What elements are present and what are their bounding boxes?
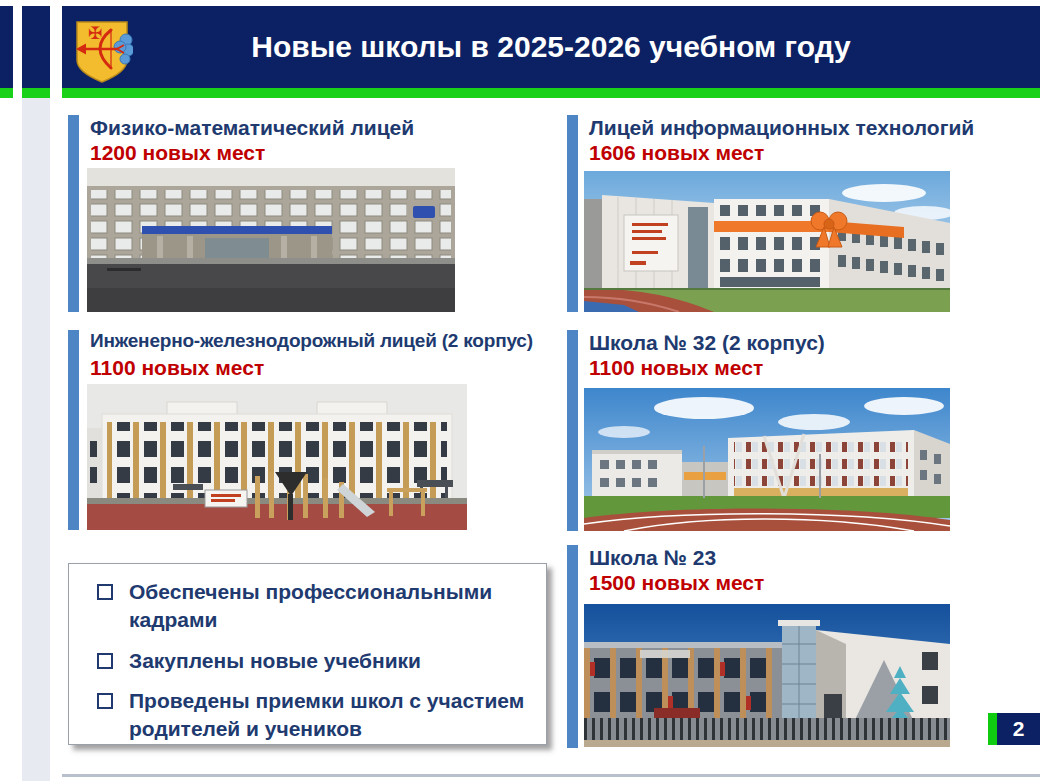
checklist-text: Проведены приемки школ с участием родите… (129, 687, 529, 744)
school-card-railway-lyceum: Инженерно-железнодорожный лицей (2 корпу… (68, 330, 472, 530)
bottom-rule (62, 774, 1040, 777)
checklist-item: Закуплены новые учебники (97, 647, 532, 675)
school-photo-32 (584, 388, 950, 531)
left-gray-column (22, 98, 50, 781)
checklist-text: Закуплены новые учебники (129, 647, 529, 675)
checkbox-bullet-icon (97, 584, 113, 600)
school-name: Физико-математический лицей (90, 116, 414, 139)
school-name: Школа № 23 (589, 546, 716, 569)
left-stripe-narrow-green (0, 88, 13, 98)
card-accent-bar (567, 115, 578, 312)
school-photo-railway-lyceum (87, 384, 467, 530)
school-places: 1100 новых мест (589, 356, 763, 379)
checkbox-bullet-icon (97, 653, 113, 669)
green-divider (62, 88, 1040, 98)
card-accent-bar (68, 330, 79, 530)
checklist-item: Обеспечены профессиональными кадрами (97, 578, 532, 635)
left-stripe-wide (22, 6, 50, 88)
school-photo-fizmat (87, 168, 455, 312)
school-photo-it-lyceum (584, 171, 950, 312)
school-name: Лицей информационных технологий (589, 116, 974, 139)
header-bar: ✠ Новые школы в 2025-2026 учебном году (62, 6, 1040, 88)
school-places: 1606 новых мест (589, 141, 764, 164)
page-number-green-accent (988, 713, 997, 745)
school-card-32: Школа № 32 (2 корпус) 1100 новых мест (567, 330, 963, 531)
school-card-23: Школа № 23 1500 новых мест (567, 545, 963, 748)
checklist-item: Проведены приемки школ с участием родите… (97, 687, 532, 744)
card-accent-bar (567, 330, 578, 531)
page-number-badge: 2 (997, 713, 1040, 745)
checklist-box: Обеспечены профессиональными кадрами Зак… (68, 563, 547, 745)
school-name: Инженерно-железнодорожный лицей (2 корпу… (90, 331, 533, 352)
school-card-it-lyceum: Лицей информационных технологий 1606 нов… (567, 115, 963, 312)
school-places: 1100 новых мест (90, 356, 264, 379)
left-stripe-wide-green (22, 88, 50, 98)
slide-title: Новые школы в 2025-2026 учебном году (62, 6, 1040, 88)
school-card-fizmat: Физико-математический лицей 1200 новых м… (68, 115, 470, 312)
card-accent-bar (68, 115, 79, 312)
card-accent-bar (567, 545, 578, 748)
presentation-slide: ✠ Новые школы в 2025-2026 учебном году Ф… (0, 0, 1040, 781)
school-places: 1500 новых мест (589, 571, 764, 594)
school-name: Школа № 32 (2 корпус) (589, 331, 825, 354)
checkbox-bullet-icon (97, 693, 113, 709)
left-stripe-narrow (0, 6, 13, 88)
school-photo-23 (584, 604, 950, 747)
school-places: 1200 новых мест (90, 141, 265, 164)
checklist-text: Обеспечены профессиональными кадрами (129, 578, 529, 635)
